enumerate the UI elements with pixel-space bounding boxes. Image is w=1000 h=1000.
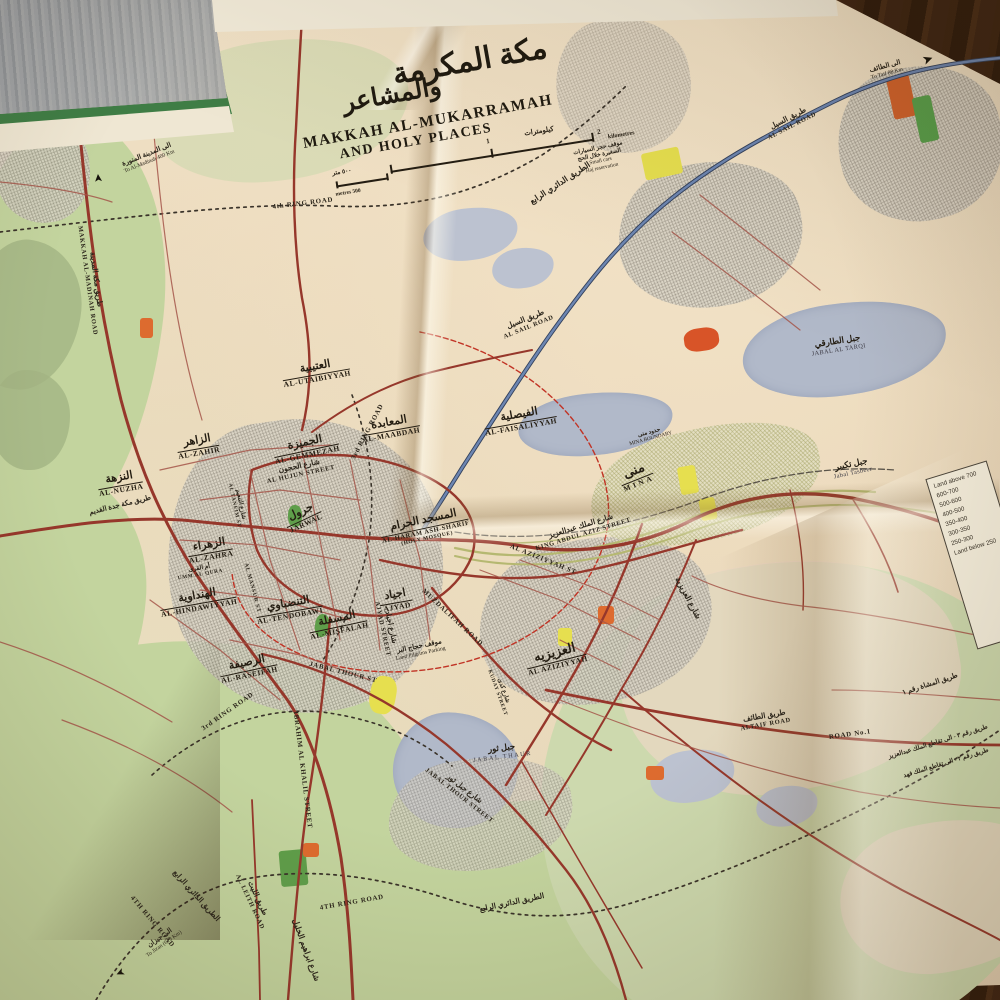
lifted-edge-shadow	[0, 640, 220, 940]
scale-tick-1: 1	[486, 137, 491, 145]
scale-m-arabic: ٥٠٠ متر	[332, 167, 352, 177]
photo-of-folded-map: مكة المكرمة والمشاعر MAKKAH AL-MUKARRAMA…	[0, 0, 1000, 1000]
to-madinah-arrow: ➤	[92, 173, 105, 183]
scale-m-english: metres 500	[335, 188, 361, 198]
scale-tick-2: 2	[596, 128, 601, 136]
